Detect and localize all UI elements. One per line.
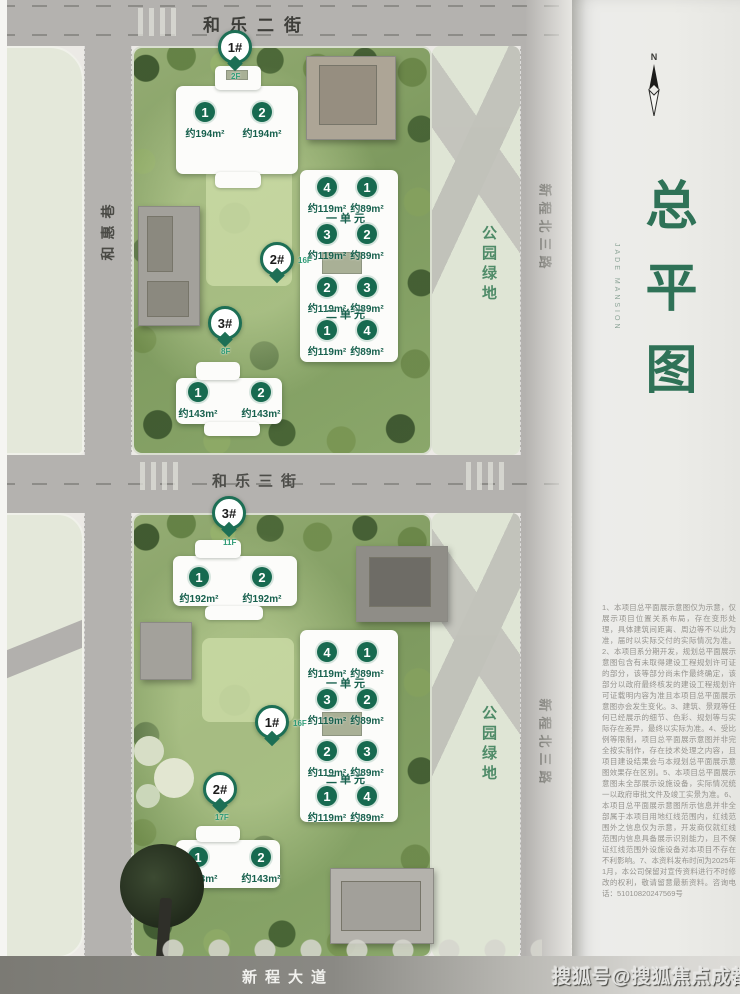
unit-number: 1 [315,318,339,342]
playground-circle [136,784,160,808]
unit-area: 约192m² [243,590,282,605]
existing-building [140,622,192,680]
site-plan-page: { "colors":{"accent_green":"#176a50","ti… [0,0,740,994]
unit-badge: 1 约192m² [171,565,227,605]
unit-badge: 4 约89m² [339,318,395,358]
page-edge [0,0,7,994]
unit-number: 4 [315,640,339,664]
unit-number: 4 [315,175,339,199]
disclaimer-text: 1、本项目总平面展示意图仅为示意，仅展示项目位置关系布局，存在变形处理，具体建筑… [602,602,736,899]
existing-building [138,206,200,326]
existing-building [356,546,448,622]
unit-badge: 2 约143m² [233,845,289,885]
street-label-bottom: 新程大道 [203,966,373,987]
unit-number: 2 [355,687,379,711]
unit-badge: 2 约143m² [233,380,289,420]
building-pin-1: 1# [218,30,252,64]
unit-badge: 1 约89m² [339,640,395,680]
page-title: 总平图 [628,178,703,424]
pin-label: 1# [228,40,242,55]
building-pin-3: 3# [208,306,242,340]
unit-number: 3 [355,275,379,299]
unit-number: 4 [355,784,379,808]
north-arrow-icon [646,64,662,116]
pin-label: 2# [213,782,227,797]
unit-area: 约143m² [242,870,281,885]
building-2-wing [196,826,240,842]
unit-number: 1 [355,640,379,664]
pin-label: 1# [265,715,279,730]
unit-number: 3 [355,739,379,763]
unit-area: 约89m² [350,712,383,727]
pin-floor-label: 17F [215,813,229,822]
terrace-steps [341,881,421,931]
unit-area: 约194m² [186,125,225,140]
unit-area: 约89m² [350,343,383,358]
unit-badge: 2 约194m² [234,100,290,140]
street-label-top: 和乐二街 [172,11,342,36]
unit-number: 3 [315,222,339,246]
park-top [432,46,520,455]
street-label-left: 和惠巷 [98,154,118,304]
pin-floor-label: 2F [231,72,240,81]
unit-badge: 2 约89m² [339,222,395,262]
parcel-top-left [0,46,84,455]
unit-number: 1 [186,380,210,404]
crosswalk-top [138,8,176,36]
pin-floor-label: 16F [293,719,307,728]
building-pin-2: 2# [203,772,237,806]
crosswalk-middle-right [466,462,504,490]
project-subtitle: JADE MANSION [613,243,620,332]
building-1-wing [215,172,261,188]
unit-number: 2 [315,275,339,299]
unit-area: 约143m² [242,405,281,420]
unit-number: 2 [249,380,273,404]
roof-detail [319,65,377,125]
park-label-top: 公园绿地 [478,225,499,305]
building-3-wing [204,422,260,436]
parcel-bottom-left [0,513,84,958]
unit-area: 约89m² [350,809,383,824]
diagonal-road [0,609,84,683]
brochure-panel: N JADE MANSION 总平图 1、本项目总平面展示意图仅为示意，仅展示项… [572,0,740,994]
building-pin-2: 2# [260,242,294,276]
unit-badge: 4 约89m² [339,784,395,824]
watermark: 搜狐号@搜狐焦点成都站 [552,962,738,989]
unit-area: 约89m² [350,247,383,262]
park-label-bottom: 公园绿地 [478,705,499,785]
entry-terrace [330,868,434,944]
unit-area: 约192m² [180,590,219,605]
existing-building [306,56,396,140]
unit-number: 3 [315,687,339,711]
unit-badge: 1 约143m² [170,380,226,420]
unit-badge: 2 约89m² [339,687,395,727]
unit-area: 约194m² [243,125,282,140]
roof-detail [147,216,173,272]
road-top-dash-line [0,5,585,7]
unit-number: 1 [193,100,217,124]
building-pin-3: 3# [212,496,246,530]
unit-number: 2 [355,222,379,246]
unit-number: 2 [249,845,273,869]
unit-badge: 2 约192m² [234,565,290,605]
compass-north-label: N [651,52,658,62]
pin-floor-label: 11F [223,538,236,547]
pin-floor-label: 8F [221,347,230,356]
building-3-wing [205,606,263,620]
pin-label: 3# [222,506,236,521]
unit-number: 1 [355,175,379,199]
unit-number: 2 [250,565,274,589]
pin-label: 2# [270,252,284,267]
unit-badge: 1 约89m² [339,175,395,215]
playground-circle [154,758,194,798]
roof-detail [369,557,431,607]
building-3-wing [196,362,240,380]
playground-circle [134,736,164,766]
roof-detail [147,281,189,317]
unit-badge: 1 约194m² [177,100,233,140]
pin-label: 3# [218,316,232,331]
compass: N [646,52,662,116]
pin-floor-label: 16F [298,256,312,265]
unit-number: 2 [315,739,339,763]
unit-number: 2 [250,100,274,124]
unit-number: 1 [315,784,339,808]
building-pin-1: 1# [255,705,289,739]
unit-number: 1 [187,565,211,589]
unit-area: 约143m² [179,405,218,420]
unit-number: 4 [355,318,379,342]
street-label-middle: 和乐三街 [173,470,343,491]
